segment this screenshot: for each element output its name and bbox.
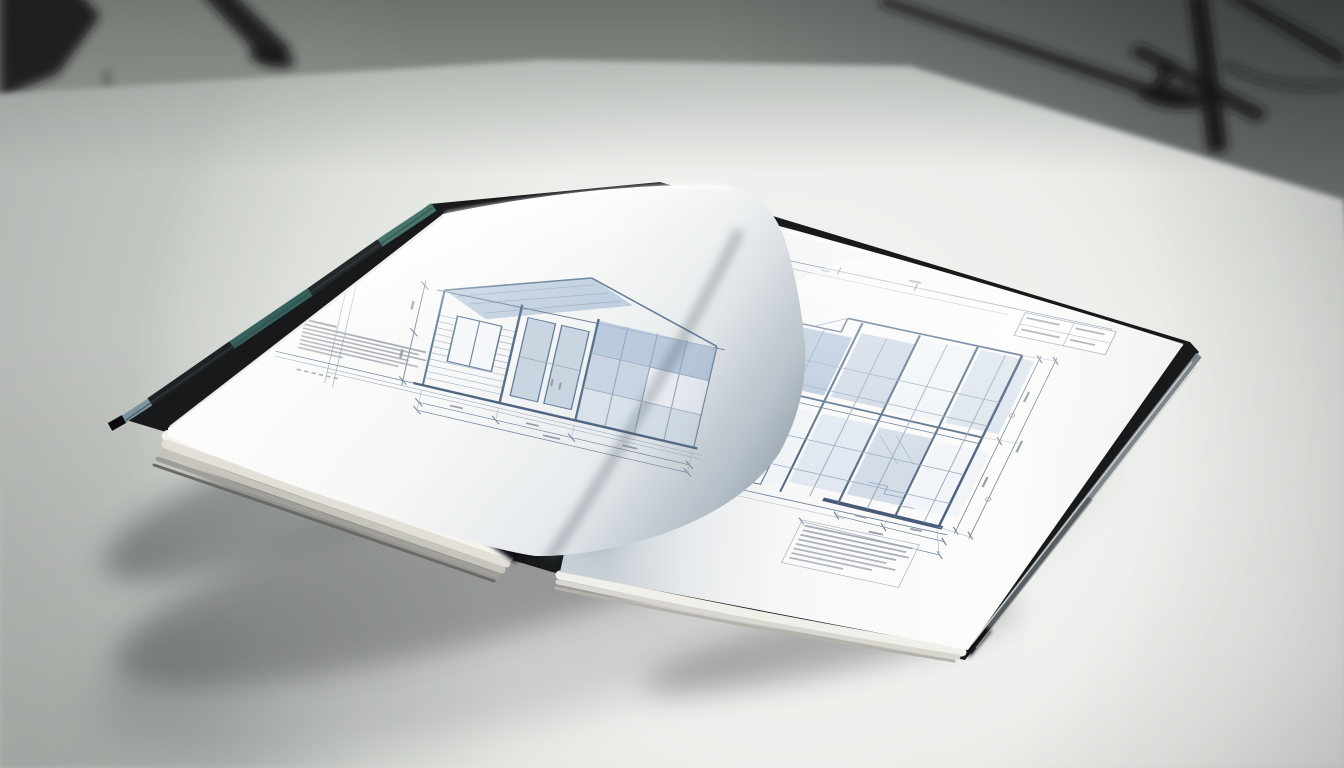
photo-scene [0, 0, 1344, 768]
vignette [0, 0, 1344, 768]
scene-canvas [0, 0, 1344, 768]
